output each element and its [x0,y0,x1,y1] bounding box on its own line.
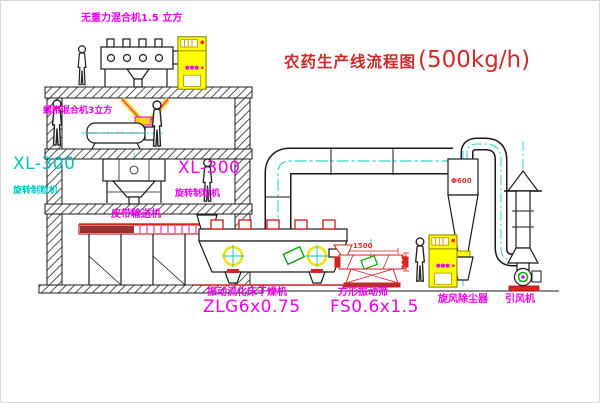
dryer-exhaust-duct [265,148,454,233]
control-cabinet-icon [429,235,457,287]
induced-draft-fan-drawing [509,269,541,292]
control-cabinet-icon [178,37,206,90]
person-figure-icon [78,46,86,85]
person-figure-icon [153,101,162,146]
label-belt-conveyor: 皮带输送机 [111,210,161,221]
belt-conveyor-drawing [79,224,206,285]
label-mid-mixer: 螺带混合机3立方 [43,107,112,116]
mid-mixer-drawing [81,123,163,149]
drawing-title: 农药生产线流程图 (500kg/h) [284,47,530,73]
label-granulator-mid-name: 旋转制粒机 [175,190,220,199]
top-mixer-drawing [101,39,188,87]
cad-flow-diagram: 农药生产线流程图 (500kg/h) 无重力混合机1.5 立方 螺带混合机3立方… [0,0,600,403]
drawing-title-capacity: (500kg/h) [418,47,530,73]
drawing-title-text: 农药生产线流程图 [284,50,416,72]
exhaust-stack-drawing [504,141,542,289]
label-granulator-left-name: 旋转制粒机 [13,187,58,196]
dimension-sieve-length: 1500 [353,243,372,250]
label-dryer-model: ZLG6x0.75 [203,299,301,317]
label-cyclone: 旋风除尘器 [438,295,488,306]
person-figure-icon [416,238,425,281]
dimension-sieve-height: 500 [399,255,406,270]
granulator-drawing [103,153,165,207]
dimension-cyclone-diameter: Φ600 [451,178,472,185]
label-granulator-left-model: XL-300 [13,156,75,174]
label-top-mixer: 无重力混合机1.5 立方 [81,14,182,25]
label-sieve-model: FS0.6x1.5 [330,299,419,317]
label-granulator-mid-model: XL-300 [178,160,240,178]
label-fan: 引风机 [505,295,535,306]
fluid-bed-dryer-drawing [195,215,351,285]
